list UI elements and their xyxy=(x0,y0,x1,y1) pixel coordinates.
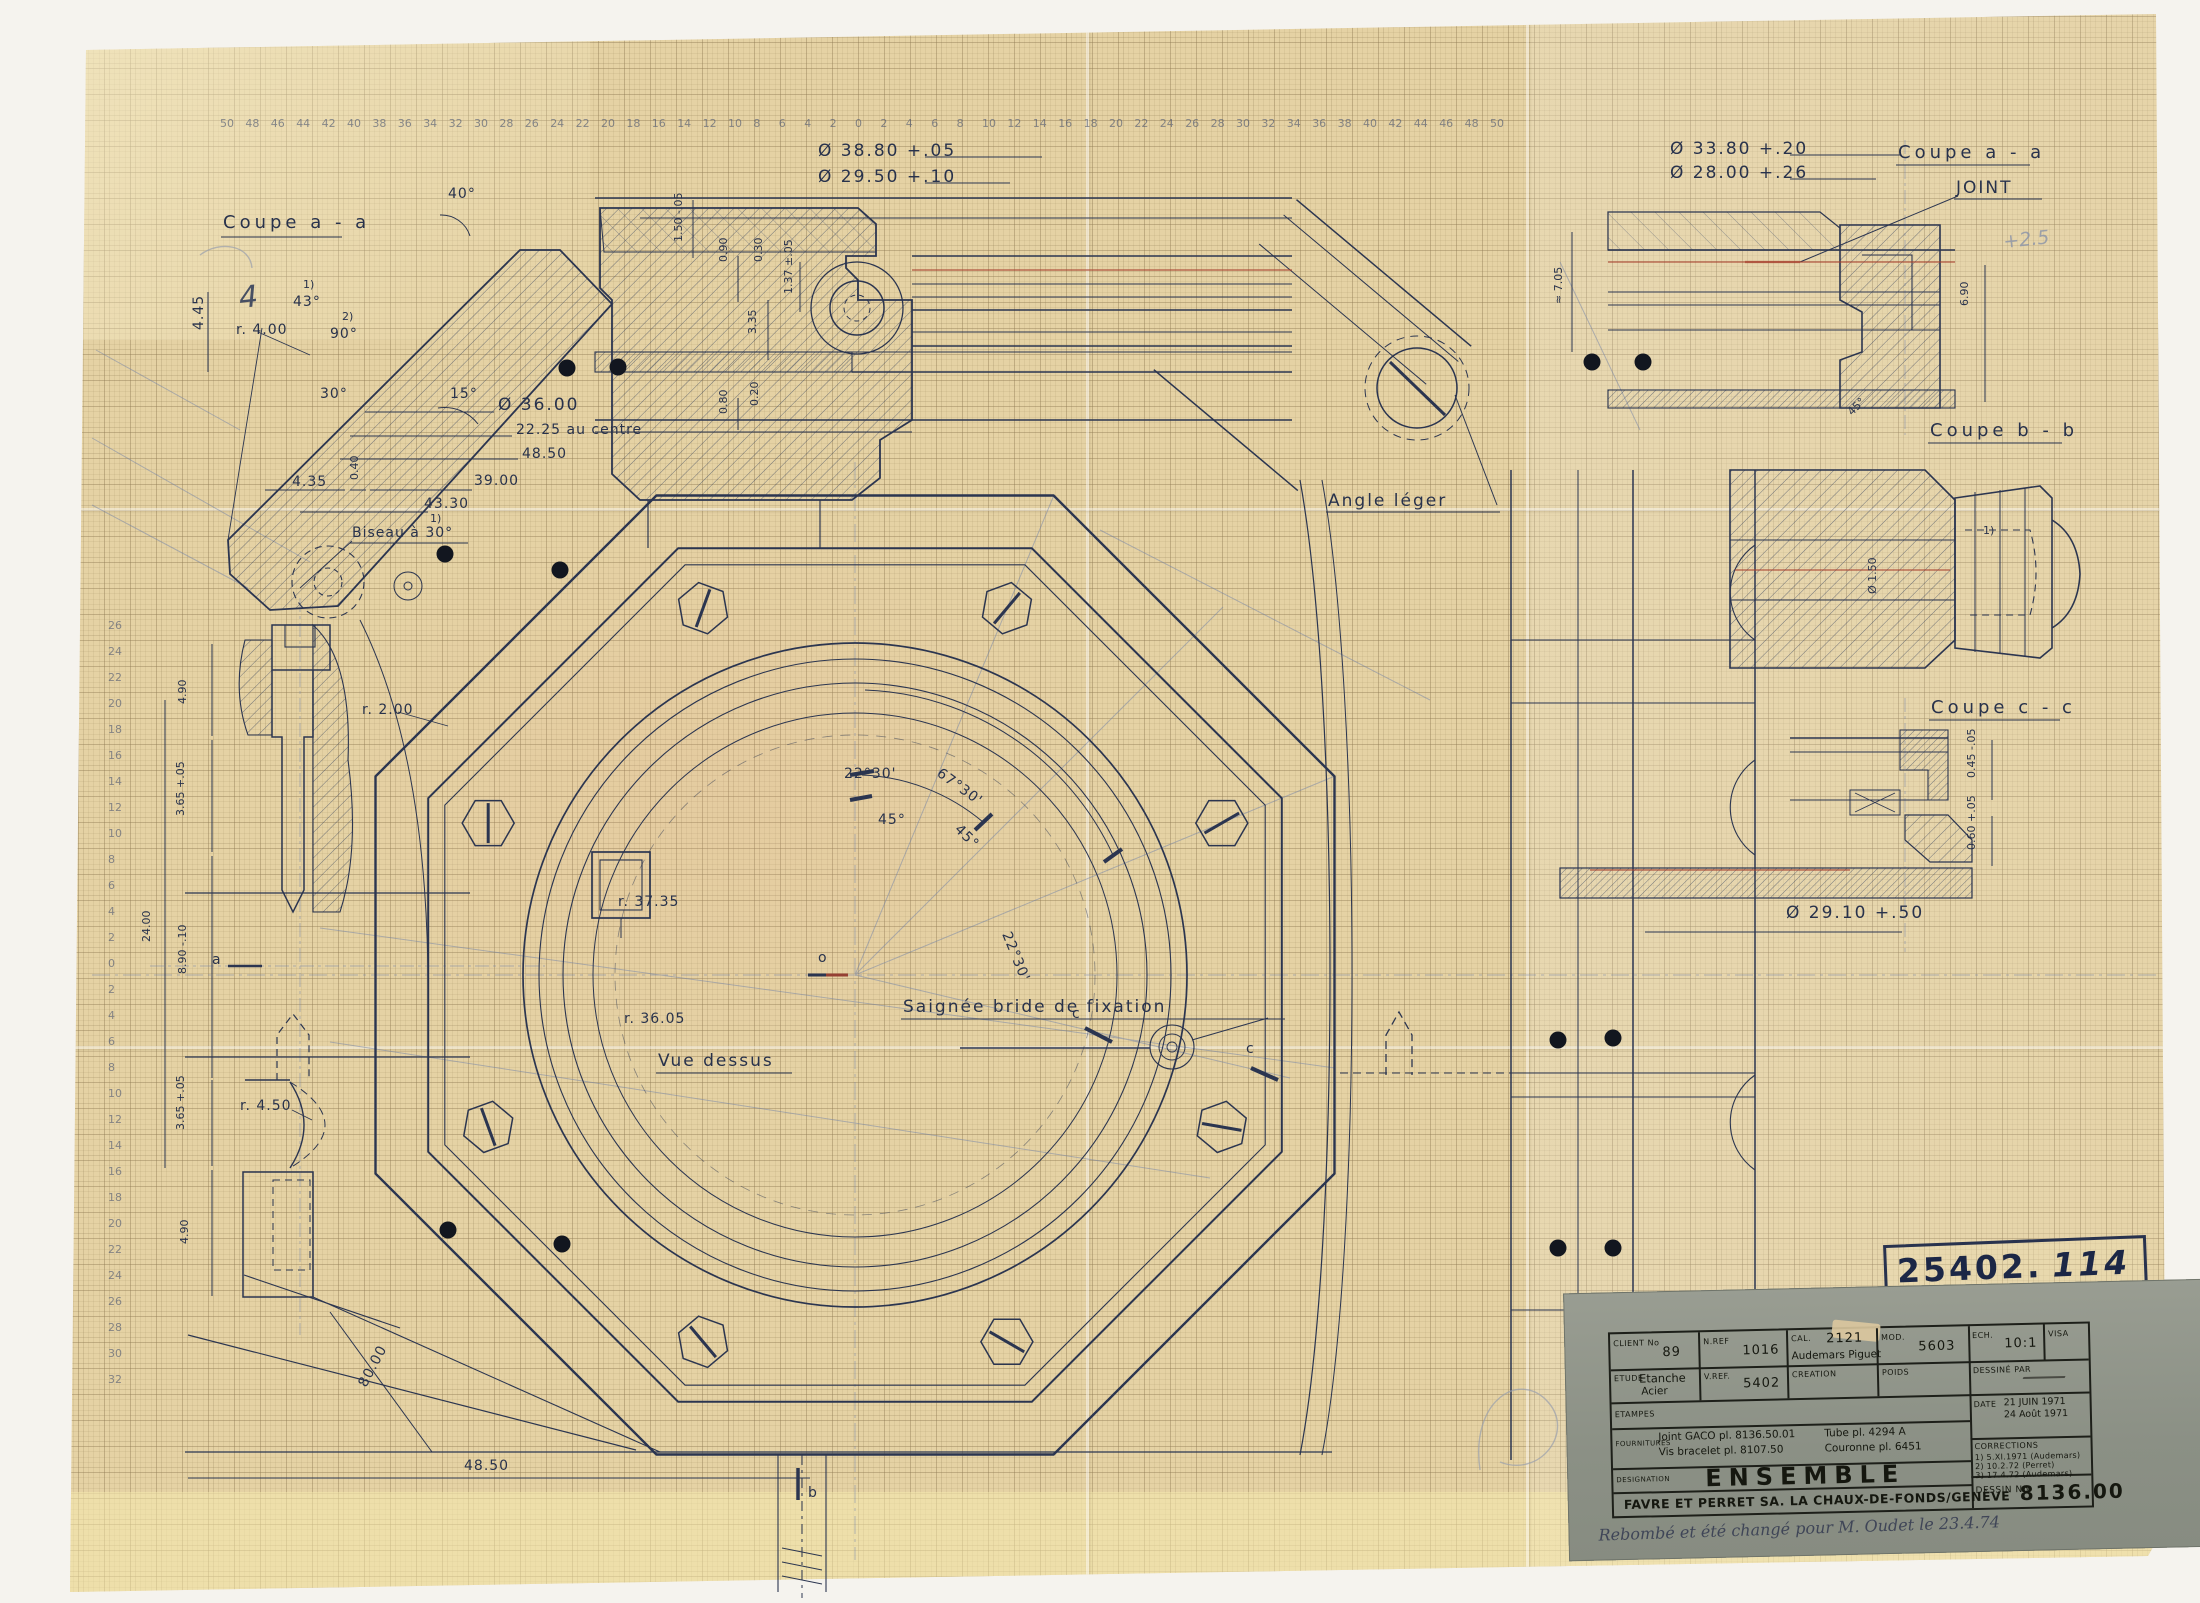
ruler-number: 20 xyxy=(108,697,122,710)
date-value-1: 21 JUIN 1971 xyxy=(2004,1396,2066,1408)
ruler-number: 22 xyxy=(576,117,590,130)
ink-dot xyxy=(1605,1030,1622,1047)
pencil-figure: 4 xyxy=(237,279,260,316)
ruler-number: 26 xyxy=(108,1295,122,1308)
dim: r. 37.35 xyxy=(618,894,679,910)
designation-label: DESIGNATION xyxy=(1616,1475,1670,1484)
ruler-number: 46 xyxy=(271,117,285,130)
dim: 22.25 au centre xyxy=(516,422,642,438)
etude-value-2: Acier xyxy=(1641,1385,1668,1398)
ruler-number: 8 xyxy=(108,1061,115,1074)
creation-label: CREATION xyxy=(1792,1369,1837,1379)
section-letter-c: c xyxy=(1072,1006,1081,1022)
dim: 24.00 xyxy=(140,911,153,943)
ink-dot xyxy=(1635,354,1652,371)
ruler-number: 36 xyxy=(1312,117,1326,130)
ruler-number: 50 xyxy=(1490,117,1504,130)
dim: r. 4.50 xyxy=(240,1098,292,1114)
dim: 48.50 xyxy=(522,446,567,462)
ruler-number: 14 xyxy=(677,117,691,130)
ech-value: 10:1 xyxy=(2004,1336,2038,1352)
dim: Ø 1.50 xyxy=(1866,557,1879,594)
dim: 40° xyxy=(448,186,476,202)
ruler-number: 44 xyxy=(296,117,310,130)
dim: 48.50 xyxy=(464,1458,509,1474)
screw-slot xyxy=(1202,1124,1241,1131)
nref-label: N.REF xyxy=(1703,1337,1729,1347)
ruler-number: 32 xyxy=(108,1373,122,1386)
ruler-number: 4 xyxy=(906,117,913,130)
ruler-number: 16 xyxy=(108,1165,122,1178)
ink-dot xyxy=(1550,1240,1567,1257)
ruler-number: 6 xyxy=(108,879,115,892)
ruler-number: 32 xyxy=(449,117,463,130)
mod-value: 5603 xyxy=(1918,1338,1955,1354)
ruler-number: 14 xyxy=(1033,117,1047,130)
ruler-number: 0 xyxy=(855,117,862,130)
label-angle-leger: Angle léger xyxy=(1328,491,1447,511)
note-ref: 1) xyxy=(430,512,441,525)
ruler-left: 2624222018161412108642024681012141618202… xyxy=(108,619,122,1386)
ruler-number: 6 xyxy=(108,1035,115,1048)
ruler-number: 30 xyxy=(1236,117,1250,130)
ruler-number: 2 xyxy=(108,983,115,996)
dim: 22°30' xyxy=(844,766,896,782)
dim: 0.80 xyxy=(717,390,730,415)
dim: 0.90 xyxy=(717,238,730,263)
label-saignee: Saignée bride de fixation xyxy=(903,997,1166,1017)
ruler-number: 38 xyxy=(1338,117,1352,130)
note-ref: 1) xyxy=(303,278,314,291)
ruler-number: 12 xyxy=(108,801,122,814)
ruler-number: 24 xyxy=(550,117,564,130)
label-biseau: Biseau à 30° xyxy=(352,525,453,541)
dim: 3.35 xyxy=(746,310,759,335)
label-vue-dessus: Vue dessus xyxy=(658,1051,774,1071)
ruler-number: 0 xyxy=(108,957,115,970)
mod-label: MOD. xyxy=(1881,1333,1905,1343)
section-letter-a: a xyxy=(212,952,222,968)
ruler-number: 22 xyxy=(1134,117,1148,130)
dim: 0.20 xyxy=(748,382,761,407)
ruler-number: 28 xyxy=(1211,117,1225,130)
designation-value: ENSEMBLE xyxy=(1705,1460,1906,1493)
ruler-number: 12 xyxy=(1007,117,1021,130)
dim: 0.30 xyxy=(752,238,765,263)
screw-slot xyxy=(1205,813,1240,833)
ruler-number: 18 xyxy=(1084,117,1098,130)
label-coupe-aa-right: Coupe a - a xyxy=(1898,142,2045,163)
ruler-number: 2 xyxy=(830,117,837,130)
dim: 3.65 +.05 xyxy=(174,761,187,816)
vref-value: 5402 xyxy=(1743,1375,1780,1391)
ruler-number: 16 xyxy=(652,117,666,130)
ruler-number: 26 xyxy=(108,619,122,632)
dim: r. 2.00 xyxy=(362,702,414,718)
screw-slot xyxy=(994,593,1020,624)
title-block-table: CLIENT No 89 N.REF 1016 CAL. 2121 Audema… xyxy=(1608,1321,2094,1518)
ruler-number: 6 xyxy=(931,117,938,130)
ruler-number: 24 xyxy=(108,1269,122,1282)
dim: Ø 33.80 +.20 xyxy=(1670,139,1808,159)
ruler-number: 18 xyxy=(626,117,640,130)
fourniture-1: Joint GACO pl. 8136.50.01 xyxy=(1658,1428,1795,1443)
nref-value: 1016 xyxy=(1742,1342,1779,1358)
date-value-2: 24 Août 1971 xyxy=(2004,1408,2068,1420)
ech-label: ECH. xyxy=(1972,1331,1993,1340)
ruler-number: 6 xyxy=(779,117,786,130)
screw-slot xyxy=(990,1332,1025,1352)
ruler-number: 28 xyxy=(499,117,513,130)
lug-screw-detail xyxy=(239,620,660,1452)
ruler-number: 32 xyxy=(1261,117,1275,130)
ruler-number: 48 xyxy=(245,117,259,130)
ruler-number: 10 xyxy=(108,1087,122,1100)
ruler-number: 42 xyxy=(322,117,336,130)
ruler-number: 20 xyxy=(1109,117,1123,130)
dessin-no-value: 8136.00 xyxy=(2019,1479,2125,1505)
corrections-label: CORRECTIONS xyxy=(1975,1441,2039,1451)
dim: 0.60 +.05 xyxy=(1965,795,1978,850)
dim: 1.37 ±.05 xyxy=(782,239,795,294)
note-ref: 2) xyxy=(342,310,353,323)
dim: 39.00 xyxy=(474,473,519,489)
ink-dot xyxy=(554,1236,571,1253)
dim: 4.35 xyxy=(292,474,327,490)
ruler-number: 12 xyxy=(703,117,717,130)
dim: ≈ 7.05 xyxy=(1552,267,1565,304)
ink-dot xyxy=(437,546,454,563)
dim: r. 36.05 xyxy=(624,1011,685,1027)
ruler-number: 20 xyxy=(601,117,615,130)
draftsman-signature xyxy=(2023,1376,2066,1379)
ruler-number: 4 xyxy=(804,117,811,130)
dim: 4.90 xyxy=(176,680,189,705)
ruler-number: 40 xyxy=(347,117,361,130)
etampes-label: ETAMPES xyxy=(1615,1409,1655,1419)
pencil-note: +2.5 xyxy=(2002,226,2050,253)
ruler-top: 5048464442403836343230282624222018161412… xyxy=(220,117,1504,130)
ruler-number: 10 xyxy=(982,117,996,130)
ruler-number: 10 xyxy=(728,117,742,130)
dim: 45° xyxy=(878,812,906,828)
ruler-number: 40 xyxy=(1363,117,1377,130)
dim: Ø 28.00 +.26 xyxy=(1670,163,1808,183)
label-coupe-cc: Coupe c - c xyxy=(1931,697,2076,718)
ruler-number: 26 xyxy=(525,117,539,130)
label-joint: JOINT xyxy=(1955,178,2013,198)
ruler-number: 38 xyxy=(372,117,386,130)
client-label: CLIENT No xyxy=(1613,1338,1659,1348)
ruler-number: 20 xyxy=(108,1217,122,1230)
dim: 43° xyxy=(293,294,321,310)
correction-3: 3) 17.4.72 (Audemars) xyxy=(1975,1469,2072,1480)
center-mark: o xyxy=(818,950,828,966)
ruler-number: 26 xyxy=(1185,117,1199,130)
ruler-number: 44 xyxy=(1414,117,1428,130)
ruler-number: 34 xyxy=(1287,117,1301,130)
vref-label: V.REF. xyxy=(1704,1372,1731,1382)
ruler-number: 22 xyxy=(108,671,122,684)
ruler-number: 16 xyxy=(108,749,122,762)
fourniture-2: Vis bracelet pl. 8107.50 xyxy=(1659,1443,1784,1458)
section-letter-c: c xyxy=(1246,1041,1255,1057)
ink-dot xyxy=(1550,1032,1567,1049)
ruler-number: 18 xyxy=(108,723,122,736)
ink-dot xyxy=(559,360,576,377)
ink-dot xyxy=(610,359,627,376)
date-label: DATE xyxy=(1974,1400,1997,1410)
cal-label: CAL. xyxy=(1791,1334,1811,1343)
dim: 80.00 xyxy=(355,1343,390,1390)
dim: Ø 29.50 +.10 xyxy=(818,167,956,187)
dim: 30° xyxy=(320,386,348,402)
dim: 0.45 -.05 xyxy=(1965,729,1978,778)
dim: 43.30 xyxy=(424,496,469,512)
ruler-number: 18 xyxy=(108,1191,122,1204)
ruler-number: 16 xyxy=(1058,117,1072,130)
ruler-number: 50 xyxy=(220,117,234,130)
dim: 15° xyxy=(450,386,478,402)
label-coupe-aa-left: Coupe a - a xyxy=(223,212,370,233)
dim: 22°30' xyxy=(998,930,1032,985)
etude-value: Etanche xyxy=(1639,1371,1686,1386)
ruler-number: 12 xyxy=(108,1113,122,1126)
note-ref: 1) xyxy=(1983,524,1994,537)
ink-dot xyxy=(1584,354,1601,371)
dim: 6.90 xyxy=(1958,282,1971,307)
ink-dot xyxy=(440,1222,457,1239)
dim: Ø 38.80 +.05 xyxy=(818,141,956,161)
dim: 3.65 +.05 xyxy=(174,1075,187,1130)
ruler-number: 10 xyxy=(108,827,122,840)
ruler-number: 36 xyxy=(398,117,412,130)
ink-dot xyxy=(1605,1240,1622,1257)
cal-client: Audemars Piguet xyxy=(1791,1348,1881,1362)
ruler-number: 8 xyxy=(753,117,760,130)
section-letter-b: b xyxy=(808,1485,818,1501)
client-value: 89 xyxy=(1662,1345,1681,1360)
ruler-number: 8 xyxy=(108,853,115,866)
ruler-number: 28 xyxy=(108,1321,122,1334)
dim: 8.90 -.10 xyxy=(176,925,189,974)
dessine-par-label: DESSINÉ PAR xyxy=(1973,1365,2031,1375)
dim: Ø 29.10 +.50 xyxy=(1786,903,1924,923)
ink-dots xyxy=(437,354,1652,1257)
dim: 4.90 xyxy=(178,1220,191,1245)
ruler-number: 2 xyxy=(108,931,115,944)
label-coupe-bb: Coupe b - b xyxy=(1930,420,2078,441)
screw-slot xyxy=(696,589,710,627)
visa-label: VISA xyxy=(2048,1329,2069,1338)
ruler-number: 4 xyxy=(108,1009,115,1022)
ruler-number: 14 xyxy=(108,1139,122,1152)
ruler-number: 2 xyxy=(880,117,887,130)
dim: 1.50 -.05 xyxy=(672,193,685,242)
ruler-number: 22 xyxy=(108,1243,122,1256)
dim: 67°30' xyxy=(934,765,986,809)
dim: Ø 36.00 xyxy=(498,395,579,415)
ruler-number: 30 xyxy=(108,1347,122,1360)
fourniture-4: Couronne pl. 6451 xyxy=(1824,1440,1921,1454)
dim: r. 4.00 xyxy=(236,322,288,338)
ruler-number: 14 xyxy=(108,775,122,788)
dim: 90° xyxy=(330,326,358,342)
poids-label: POIDS xyxy=(1882,1368,1909,1378)
ruler-number: 42 xyxy=(1388,117,1402,130)
section-coupe-aa-right xyxy=(1560,196,2080,898)
screw-slot xyxy=(481,1108,495,1146)
title-block-photo: CLIENT No 89 N.REF 1016 CAL. 2121 Audema… xyxy=(1563,1279,2200,1562)
ruler-number: 4 xyxy=(108,905,115,918)
cal-value: 2121 xyxy=(1826,1331,1863,1347)
fourniture-3: Tube pl. 4294 A xyxy=(1824,1426,1906,1440)
ruler-number: 34 xyxy=(423,117,437,130)
screw-slot xyxy=(690,1327,716,1358)
ruler-number: 8 xyxy=(957,117,964,130)
ruler-number: 48 xyxy=(1465,117,1479,130)
ruler-number: 24 xyxy=(108,645,122,658)
dim: 0.40 xyxy=(348,456,361,481)
ruler-number: 30 xyxy=(474,117,488,130)
ruler-number: 46 xyxy=(1439,117,1453,130)
dim: 4.45 xyxy=(191,295,207,330)
blueprint-sheet: 5048464442403836343230282624222018161412… xyxy=(0,0,2200,1603)
ink-dot xyxy=(552,562,569,579)
case-bottom-profile xyxy=(185,1335,1332,1598)
ruler-number: 24 xyxy=(1160,117,1174,130)
